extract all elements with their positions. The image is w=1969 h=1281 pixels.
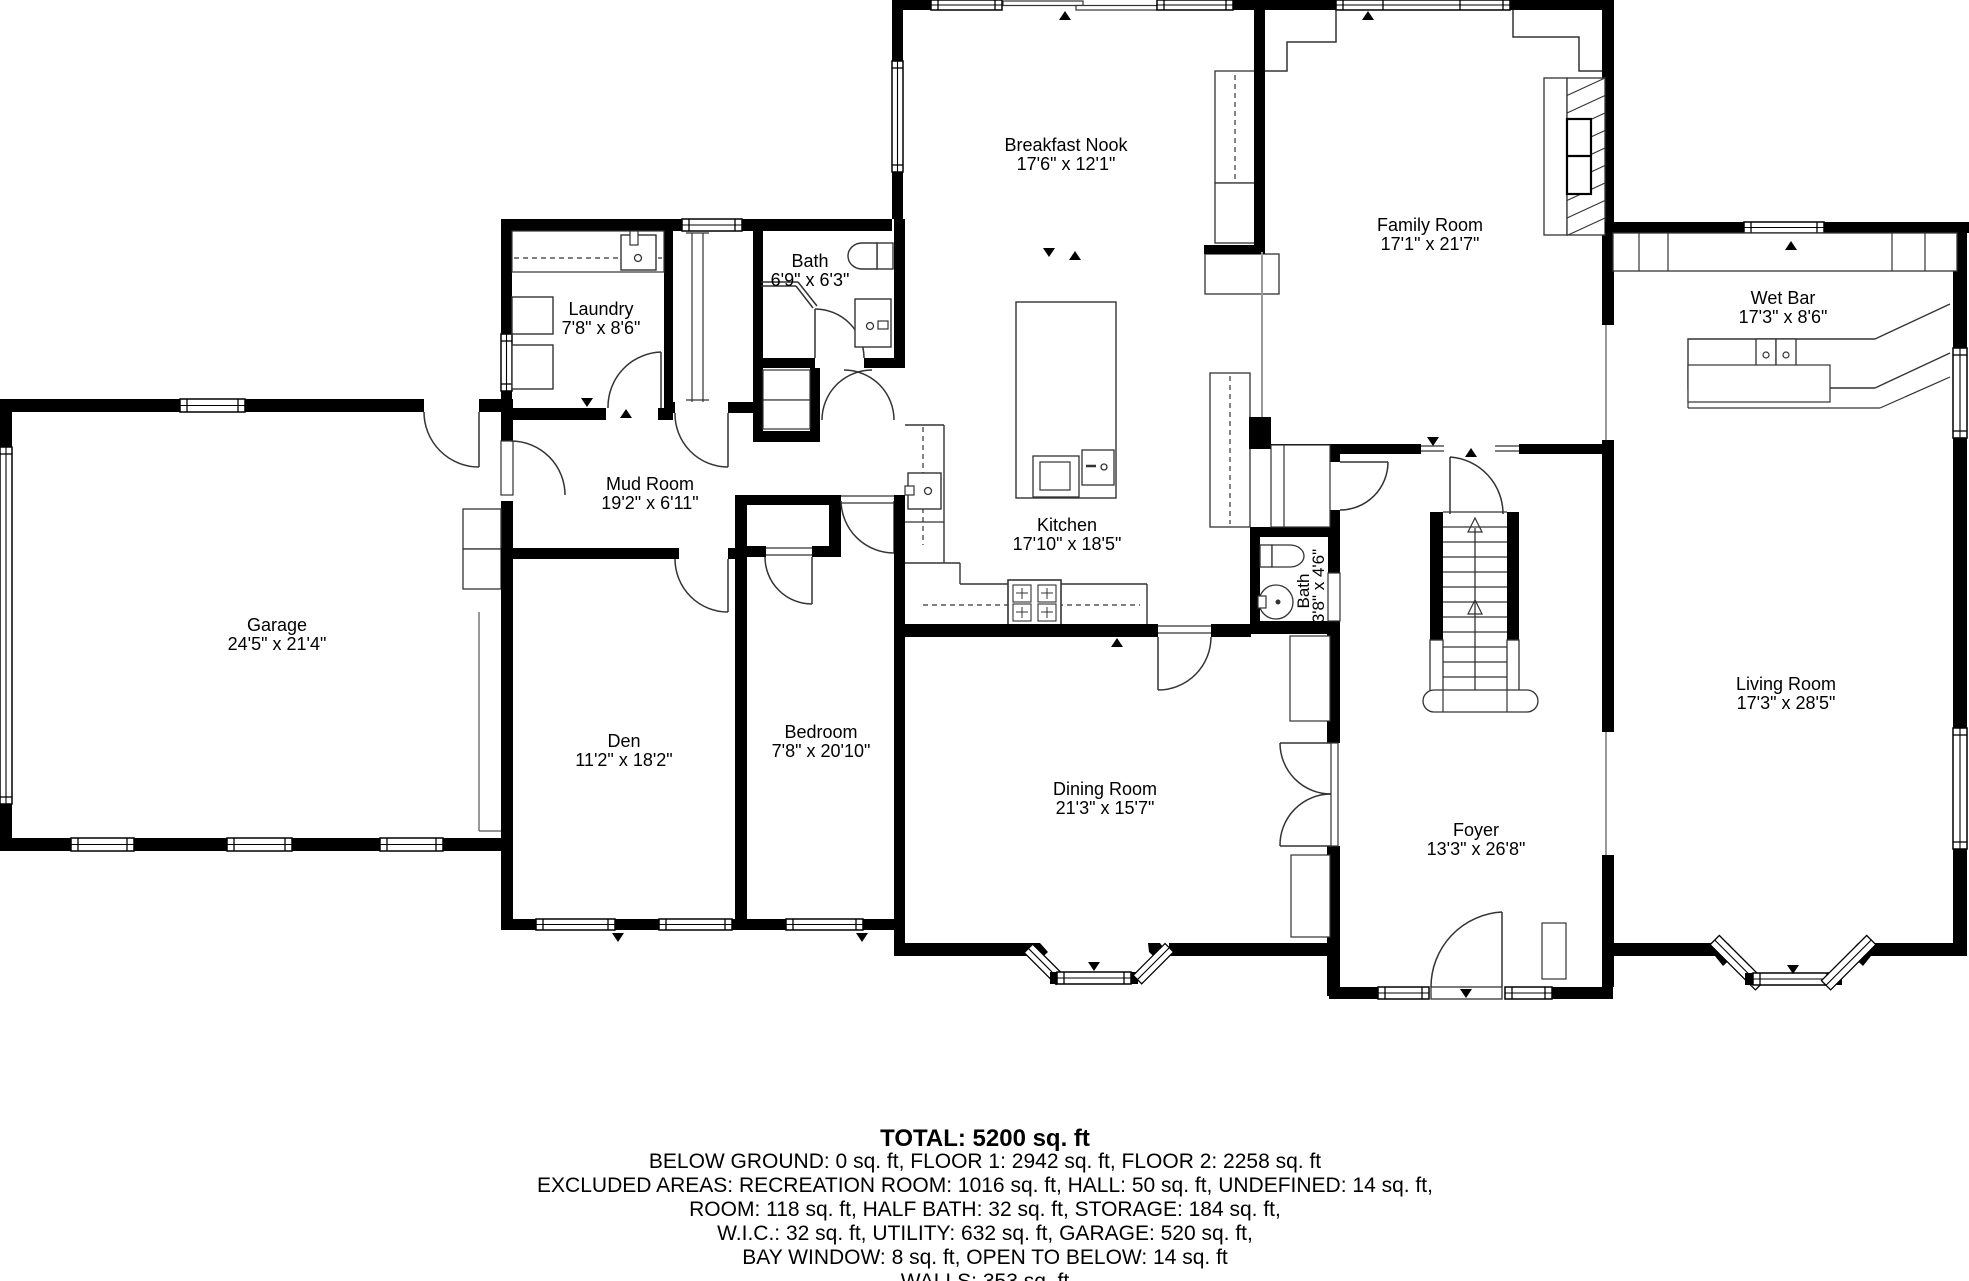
svg-text:TOTAL: 5200 sq. ft: TOTAL: 5200 sq. ft (880, 1125, 1090, 1152)
svg-text:17'1" x 21'7": 17'1" x 21'7" (1381, 234, 1480, 254)
svg-text:24'5" x 21'4": 24'5" x 21'4" (228, 634, 327, 654)
svg-text:Kitchen: Kitchen (1037, 515, 1097, 535)
svg-text:17'10" x 18'5": 17'10" x 18'5" (1013, 534, 1122, 554)
svg-text:Wet Bar: Wet Bar (1751, 288, 1816, 308)
svg-text:17'6" x 12'1": 17'6" x 12'1" (1017, 154, 1116, 174)
svg-text:BELOW GROUND: 0 sq. ft, FLOOR: BELOW GROUND: 0 sq. ft, FLOOR 1: 2942 sq… (649, 1150, 1321, 1173)
svg-text:EXCLUDED AREAS: RECREATION ROO: EXCLUDED AREAS: RECREATION ROOM: 1016 sq… (537, 1174, 1433, 1197)
svg-text:17'3" x 8'6": 17'3" x 8'6" (1739, 307, 1828, 327)
svg-text:Garage: Garage (247, 615, 307, 635)
svg-text:11'2" x 18'2": 11'2" x 18'2" (575, 750, 672, 770)
svg-text:W.I.C.: 32 sq. ft, UTILITY: 63: W.I.C.: 32 sq. ft, UTILITY: 632 sq. ft, … (717, 1222, 1253, 1245)
svg-text:Bedroom: Bedroom (784, 722, 857, 742)
svg-text:7'8" x 20'10": 7'8" x 20'10" (772, 741, 871, 761)
svg-text:Mud Room: Mud Room (606, 474, 694, 494)
svg-text:13'3" x 26'8": 13'3" x 26'8" (1427, 839, 1526, 859)
svg-text:BAY WINDOW: 8 sq. ft, OPEN TO: BAY WINDOW: 8 sq. ft, OPEN TO BELOW: 14 … (742, 1246, 1228, 1269)
svg-text:Bath: Bath (791, 251, 828, 271)
svg-text:WALLS: 353 sq. ft: WALLS: 353 sq. ft (901, 1270, 1070, 1281)
svg-text:Foyer: Foyer (1453, 820, 1499, 840)
svg-text:Family Room: Family Room (1377, 215, 1483, 235)
svg-text:Living Room: Living Room (1736, 674, 1836, 694)
svg-text:Dining Room: Dining Room (1053, 779, 1157, 799)
svg-text:Den: Den (607, 731, 640, 751)
svg-text:Breakfast Nook: Breakfast Nook (1004, 135, 1128, 155)
svg-text:19'2" x 6'11": 19'2" x 6'11" (601, 493, 698, 513)
svg-text:7'8" x 8'6": 7'8" x 8'6" (562, 318, 641, 338)
svg-text:17'3" x 28'5": 17'3" x 28'5" (1737, 693, 1836, 713)
svg-text:ROOM: 118 sq. ft, HALF BATH: 3: ROOM: 118 sq. ft, HALF BATH: 32 sq. ft, … (689, 1198, 1281, 1221)
svg-text:Laundry: Laundry (568, 299, 633, 319)
svg-text:3'8" x 4'6": 3'8" x 4'6" (1309, 549, 1328, 623)
svg-text:21'3" x 15'7": 21'3" x 15'7" (1056, 798, 1155, 818)
svg-text:6'9" x 6'3": 6'9" x 6'3" (771, 270, 850, 290)
